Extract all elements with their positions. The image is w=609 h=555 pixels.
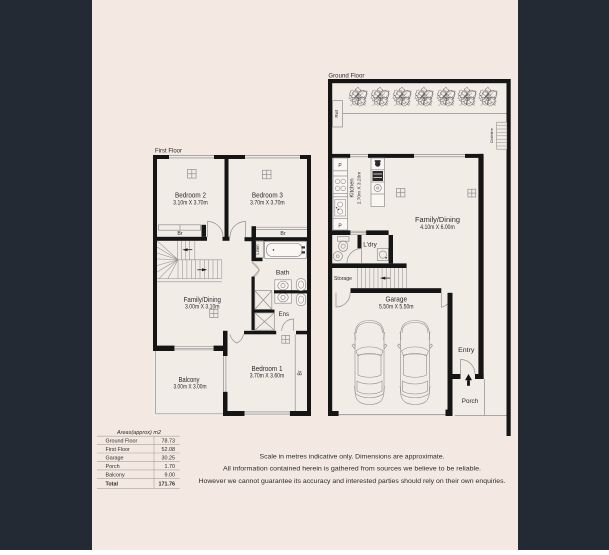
svg-text:4.10m X 6.00m: 4.10m X 6.00m — [420, 225, 455, 231]
svg-text:Storage: Storage — [334, 276, 352, 282]
svg-text:3.70m X 3.60m: 3.70m X 3.60m — [250, 374, 285, 380]
svg-text:Clothline: Clothline — [489, 128, 494, 143]
svg-text:Porch: Porch — [462, 398, 479, 405]
svg-text:Family/Dining: Family/Dining — [415, 217, 460, 224]
svg-text:Bedroom 1: Bedroom 1 — [252, 366, 283, 373]
svg-text:171.76: 171.76 — [159, 482, 176, 488]
svg-text:9.00: 9.00 — [165, 472, 176, 478]
svg-text:Rwt: Rwt — [334, 109, 339, 117]
svg-text:First Floor: First Floor — [155, 148, 183, 155]
svg-text:78.73: 78.73 — [162, 439, 176, 445]
svg-text:All information contained here: All information contained herein is gath… — [223, 466, 481, 473]
svg-text:5.50m X 5.50m: 5.50m X 5.50m — [379, 304, 414, 310]
svg-text:Garage: Garage — [106, 455, 124, 461]
svg-text:52.08: 52.08 — [162, 447, 176, 453]
svg-text:Balcony: Balcony — [106, 472, 125, 478]
svg-text:3.70m X 3.70m: 3.70m X 3.70m — [250, 200, 285, 206]
svg-text:Scale in metres indicative onl: Scale in metres indicative only. Dimensi… — [260, 454, 445, 461]
svg-text:First Floor: First Floor — [106, 447, 130, 453]
svg-text:3.00m X 3.00m: 3.00m X 3.00m — [174, 384, 207, 390]
svg-text:Bedroom 2: Bedroom 2 — [175, 193, 206, 200]
svg-text:However we cannot guarantee it: However we cannot guarantee its accuracy… — [199, 478, 506, 485]
svg-text:30.25: 30.25 — [162, 455, 176, 461]
svg-text:Balcony: Balcony — [179, 377, 200, 384]
svg-text:Ens: Ens — [279, 311, 290, 318]
svg-text:Areas(approx) m2: Areas(approx) m2 — [116, 430, 161, 436]
svg-text:Br: Br — [177, 231, 182, 237]
svg-text:Ground Floor: Ground Floor — [328, 72, 365, 79]
svg-text:Kitchen: Kitchen — [350, 178, 356, 197]
svg-text:Entry: Entry — [458, 347, 475, 354]
svg-text:2.70m X 3.20m: 2.70m X 3.20m — [356, 172, 362, 205]
svg-text:Ground Floor: Ground Floor — [106, 439, 138, 445]
svg-text:Family/Dining: Family/Dining — [184, 297, 221, 304]
svg-text:3.10m X 3.70m: 3.10m X 3.70m — [173, 200, 208, 206]
svg-text:Total: Total — [106, 482, 119, 488]
svg-text:Porch: Porch — [106, 464, 120, 470]
svg-text:Bedroom 3: Bedroom 3 — [252, 193, 283, 200]
svg-text:L'dry: L'dry — [363, 242, 377, 248]
svg-text:Bath: Bath — [276, 270, 290, 277]
svg-text:1.70: 1.70 — [165, 464, 176, 470]
svg-text:Br: Br — [297, 370, 303, 375]
svg-text:Garage: Garage — [386, 297, 408, 304]
svg-text:Br: Br — [280, 231, 285, 237]
